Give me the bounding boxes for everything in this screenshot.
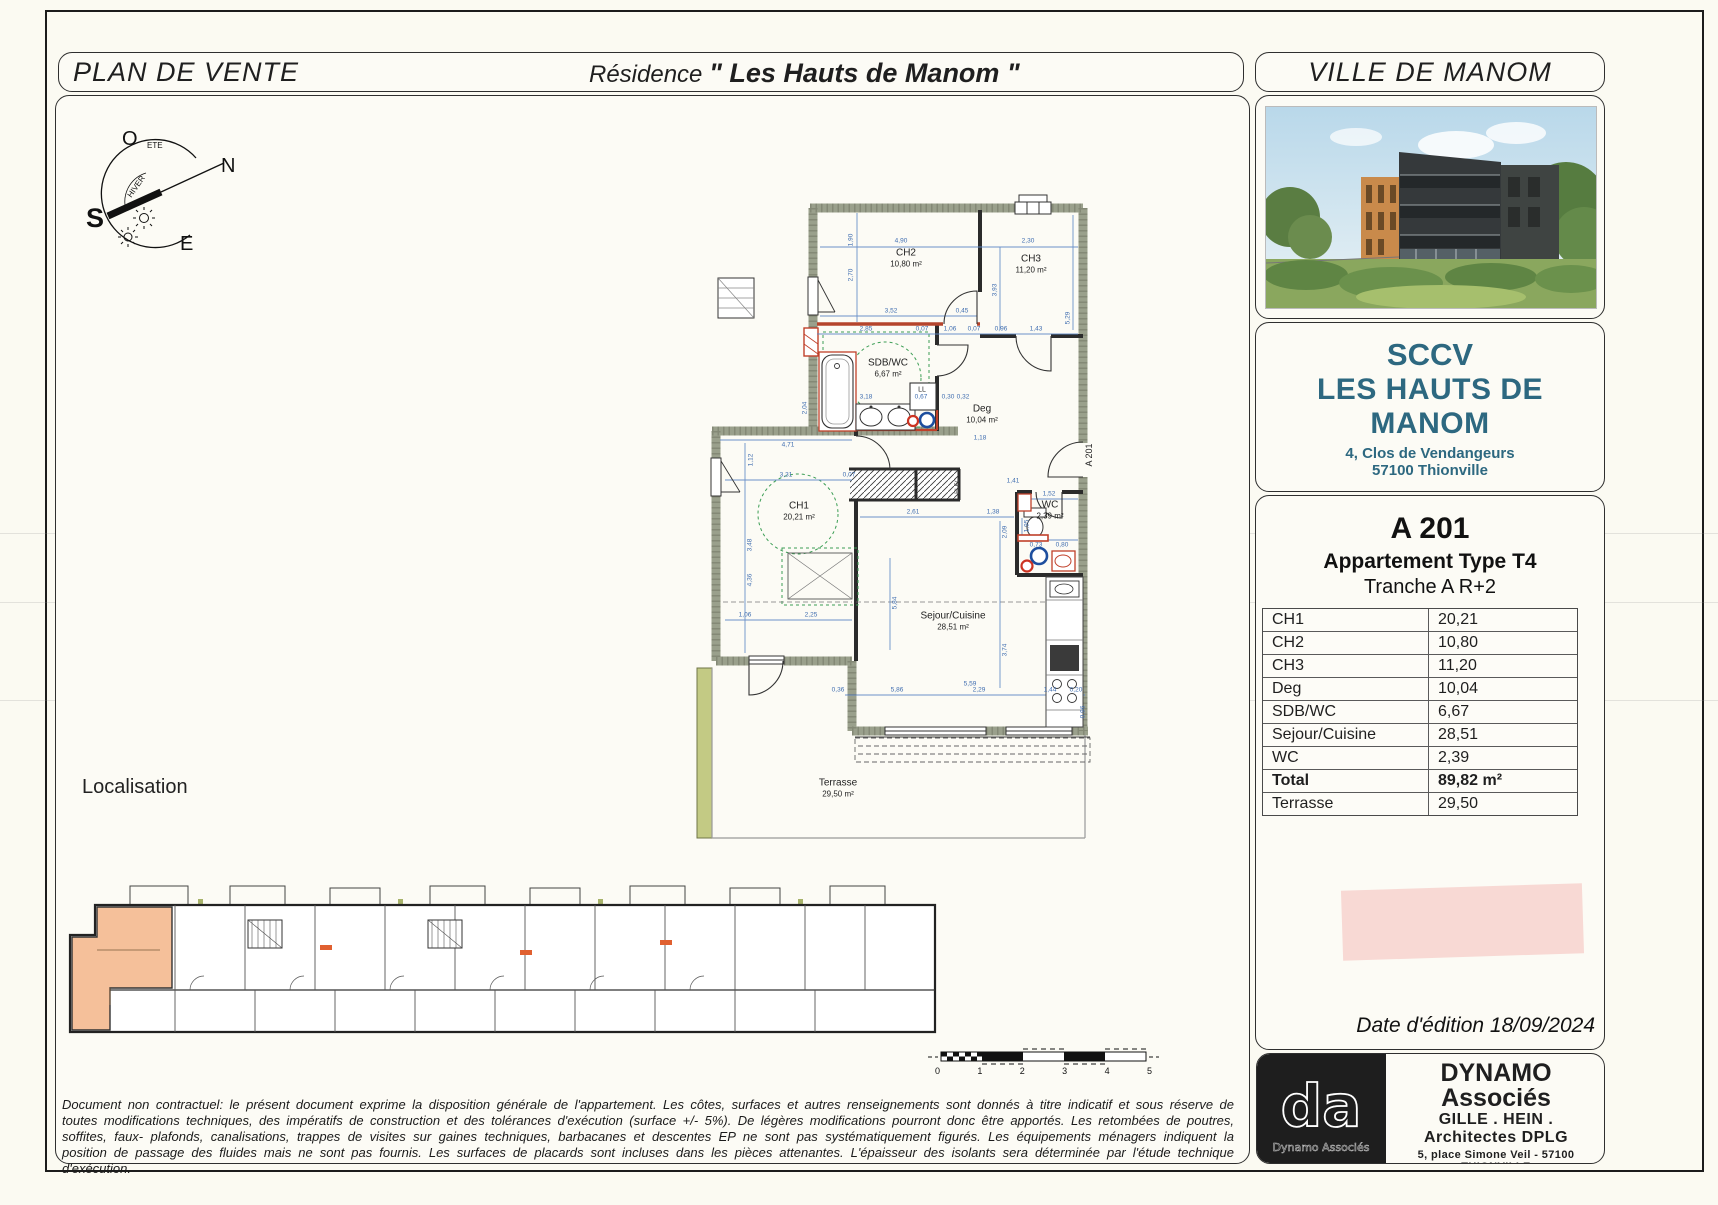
dimension-label: 0,32 xyxy=(957,394,970,401)
scale-tick: 3 xyxy=(1062,1066,1067,1076)
unit-type: Appartement Type T4 xyxy=(1256,550,1604,574)
dimension-label: 0,67 xyxy=(915,394,928,401)
area-row: WC 2,39 xyxy=(1263,747,1577,770)
dimension-label: 1,95 xyxy=(1024,520,1031,533)
compass-rose xyxy=(101,140,224,248)
area-value: 20,21 xyxy=(1429,611,1478,629)
developer-box: SCCV LES HAUTS DE MANOM 4, Clos de Venda… xyxy=(1255,322,1605,492)
compass-west-label: O xyxy=(122,128,138,151)
dimension-label: 0,73 xyxy=(1030,542,1043,549)
dimension-label: 5,86 xyxy=(891,687,904,694)
area-value: 29,50 xyxy=(1429,795,1478,813)
compass-south-label: S xyxy=(86,203,104,234)
dimension-label: 1,43 xyxy=(1030,326,1043,333)
dimension-label: 1,44 xyxy=(1044,687,1057,694)
dimension-label: 3,31 xyxy=(780,472,793,479)
dimension-label: 0,80 xyxy=(1056,542,1069,549)
dimension-label: 3,18 xyxy=(860,394,873,401)
area-room-label: Terrasse xyxy=(1263,793,1429,815)
dimension-label: 0,07 xyxy=(843,472,856,479)
area-row: Total 89,82 m² xyxy=(1263,770,1577,793)
dimension-label: 2,04 xyxy=(802,402,809,415)
dimension-label: 2,70 xyxy=(848,269,855,282)
architect-details: DYNAMO Associés GILLE . HEIN . Architect… xyxy=(1394,1061,1598,1164)
architect-title: GILLE . HEIN . Architectes DPLG xyxy=(1394,1111,1598,1147)
disclaimer-text: Document non contractuel: le présent doc… xyxy=(62,1097,1234,1178)
dimension-label: 5,84 xyxy=(892,597,899,610)
floor-plan xyxy=(697,195,1090,838)
area-row: CH2 10,80 xyxy=(1263,632,1577,655)
room-label: CH2 10,80 m² xyxy=(890,248,922,269)
dimension-label: 4,71 xyxy=(782,442,795,449)
area-value: 28,51 xyxy=(1429,726,1478,744)
developer-name-line1: SCCV xyxy=(1256,337,1604,373)
scale-tick: 5 xyxy=(1147,1066,1152,1076)
room-label: CH3 11,20 m² xyxy=(1016,254,1047,275)
dimension-label: 5,29 xyxy=(1065,312,1072,325)
dimension-label: 0,96 xyxy=(1080,706,1087,719)
area-row: Terrasse 29,50 xyxy=(1263,793,1577,815)
architect-address: 5, place Simone Veil - 57100 THIONVILLE xyxy=(1394,1149,1598,1164)
dimension-label: 3,48 xyxy=(747,539,754,552)
dimension-label: 1,12 xyxy=(748,454,755,467)
dimension-label: 1,90 xyxy=(848,234,855,247)
architect-logo: da Dynamo Associés xyxy=(1257,1054,1386,1163)
localisation-label: Localisation xyxy=(82,776,188,799)
dimension-label: 4,90 xyxy=(895,238,908,245)
area-room-label: SDB/WC xyxy=(1263,701,1429,723)
dimension-label: 3,52 xyxy=(885,308,898,315)
area-value: 6,67 xyxy=(1429,703,1469,721)
dimension-label: 4,36 xyxy=(747,574,754,587)
dimension-label: 2,85 xyxy=(860,326,873,333)
scale-bar xyxy=(928,1049,1159,1064)
dimension-label: 0,45 xyxy=(956,308,969,315)
area-row: CH1 20,21 xyxy=(1263,609,1577,632)
dimension-label: 2,61 xyxy=(907,509,920,516)
dimension-label: 3,74 xyxy=(1002,644,1009,657)
room-label: Terrasse 29,50 m² xyxy=(819,778,857,799)
building-photo xyxy=(1265,106,1597,309)
plan-tag: A 201 xyxy=(1084,443,1094,466)
dimension-label: 2,25 xyxy=(805,612,818,619)
compass-north-label: N xyxy=(221,155,235,178)
area-value: 2,39 xyxy=(1429,749,1469,767)
dimension-label: 2,29 xyxy=(973,687,986,694)
dimension-label: 1,52 xyxy=(1043,491,1056,498)
area-room-label: Deg xyxy=(1263,678,1429,700)
room-label: SDB/WC 6,67 m² xyxy=(868,358,908,379)
room-label: WC 2,39 m² xyxy=(1036,500,1063,521)
architect-logo-caption: Dynamo Associés xyxy=(1273,1141,1370,1154)
dimension-label: 1,06 xyxy=(739,612,752,619)
scale-tick: 2 xyxy=(1020,1066,1025,1076)
dimension-label: 1,41 xyxy=(1007,478,1020,485)
unit-tranche: Tranche A R+2 xyxy=(1256,576,1604,599)
dimension-label: 0,07 xyxy=(916,326,929,333)
unit-code: A 201 xyxy=(1256,512,1604,546)
developer-address-line2: 57100 Thionville xyxy=(1256,462,1604,479)
area-row: CH3 11,20 xyxy=(1263,655,1577,678)
dimension-label: 0,07 xyxy=(968,326,981,333)
scale-tick: 0 xyxy=(935,1066,940,1076)
area-room-label: CH3 xyxy=(1263,655,1429,677)
dimension-label: 0,96 xyxy=(995,326,1008,333)
scale-tick: 4 xyxy=(1105,1066,1110,1076)
area-room-label: CH2 xyxy=(1263,632,1429,654)
area-room-label: WC xyxy=(1263,747,1429,769)
area-value: 89,82 m² xyxy=(1429,772,1502,790)
scale-tick-numbers: 012345 xyxy=(935,1066,1152,1076)
architect-box: da Dynamo Associés DYNAMO Associés GILLE… xyxy=(1256,1053,1605,1164)
site-plan xyxy=(70,886,935,1032)
developer-name-line2: LES HAUTS DE MANOM xyxy=(1256,373,1604,441)
dimension-label: 2,09 xyxy=(1002,526,1009,539)
plan-de-vente-page: PLAN DE VENTE Résidence " Les Hauts de M… xyxy=(0,0,1718,1205)
dimension-label: 0,20 xyxy=(1070,687,1083,694)
dimension-label: 1,18 xyxy=(974,435,987,442)
area-value: 10,04 xyxy=(1429,680,1478,698)
area-row: SDB/WC 6,67 xyxy=(1263,701,1577,724)
dimension-label: 0,30 xyxy=(942,394,955,401)
plan-tag: ELEC xyxy=(955,478,961,494)
areas-table: CH1 20,21 CH2 10,80 CH3 11,20 Deg 10,04 … xyxy=(1262,608,1578,816)
building-photo-box xyxy=(1255,95,1605,319)
architect-name: DYNAMO Associés xyxy=(1394,1061,1598,1111)
dimension-label: 3,93 xyxy=(992,284,999,297)
edition-date: Date d'édition 18/09/2024 xyxy=(1300,1014,1595,1038)
room-label: Sejour/Cuisine 28,51 m² xyxy=(920,611,985,632)
compass-summer-label: ETE xyxy=(147,141,163,150)
plan-tag: LL xyxy=(918,387,926,394)
dimension-label: 1,06 xyxy=(944,326,957,333)
area-row: Sejour/Cuisine 28,51 xyxy=(1263,724,1577,747)
developer-address-line1: 4, Clos de Vendangeurs xyxy=(1256,445,1604,462)
dimension-label: 2,30 xyxy=(1022,238,1035,245)
dimension-label: 0,36 xyxy=(832,687,845,694)
area-room-label: Sejour/Cuisine xyxy=(1263,724,1429,746)
area-value: 10,80 xyxy=(1429,634,1478,652)
area-value: 11,20 xyxy=(1429,657,1477,675)
compass-east-label: E xyxy=(180,233,193,256)
room-label: Deg 10,04 m² xyxy=(966,404,998,425)
area-room-label: CH1 xyxy=(1263,609,1429,631)
architect-logo-letters: da xyxy=(1281,1072,1362,1140)
room-label: CH1 20,21 m² xyxy=(783,501,815,522)
area-row: Deg 10,04 xyxy=(1263,678,1577,701)
area-room-label: Total xyxy=(1263,770,1429,792)
scale-tick: 1 xyxy=(977,1066,982,1076)
price-redaction xyxy=(1341,883,1584,961)
dimension-label: 1,38 xyxy=(987,509,1000,516)
